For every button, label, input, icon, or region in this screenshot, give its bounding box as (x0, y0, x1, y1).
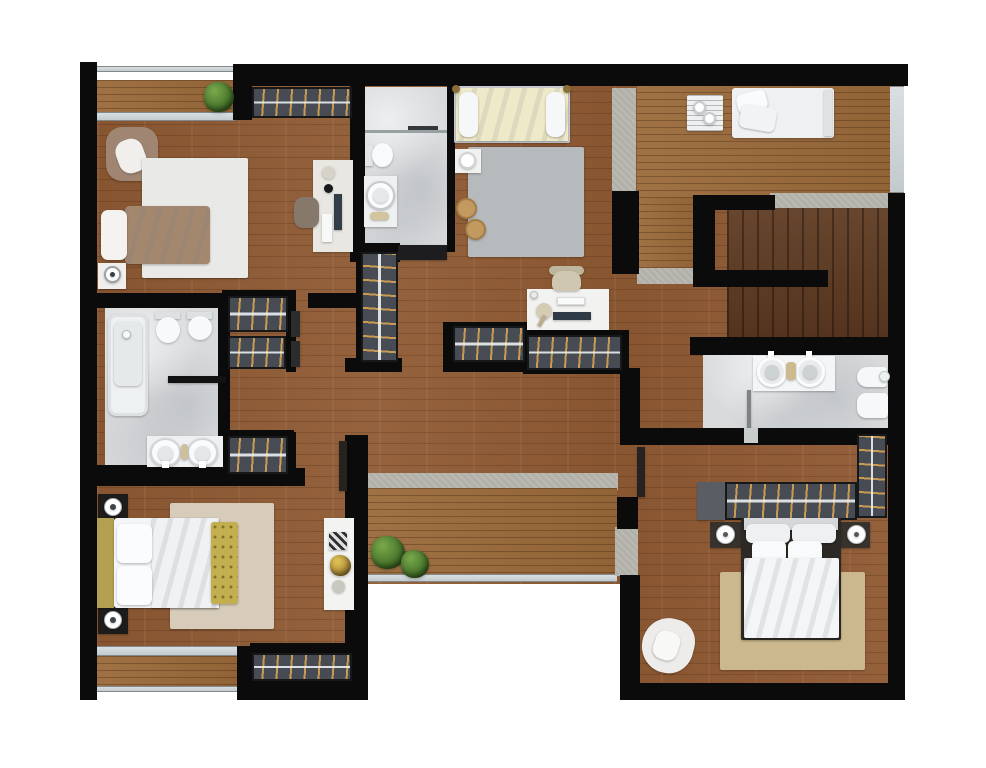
bathroom-right-soap (786, 362, 796, 380)
wardrobe-bedroom3-cabinet (697, 482, 725, 520)
bathroom-right-bidet-btn (879, 371, 890, 382)
bedroom1-bed-duvet (125, 206, 210, 264)
wardrobe-bl (252, 653, 352, 681)
bedroom2-desk-keyboard (557, 297, 585, 305)
wall-bedroom3-left-mid (617, 497, 638, 529)
bathroom-left-toilet-bowl (156, 317, 180, 343)
bathroom-left-sink-a-inner (158, 446, 173, 461)
wall-terrace-left (612, 191, 639, 274)
wall-stairs-top (715, 195, 775, 210)
balcony-bl-deck (97, 656, 237, 687)
balcony-plant-a (371, 536, 405, 569)
bedroom2-rug (468, 147, 584, 257)
bedroom4-lamp-bottom-dot (110, 617, 116, 623)
wardrobe-hall-a (228, 296, 288, 332)
floor-plan (0, 0, 986, 768)
bathroom-left-soap (181, 444, 188, 460)
bathroom-right-toilet (857, 393, 888, 418)
bathroom-left-faucet-b (199, 461, 206, 468)
wall-right (888, 193, 905, 700)
bathroom-ensuite1-floor (363, 87, 447, 252)
bedroom1-desk-dot (324, 184, 333, 193)
bedroom4-console-dish (332, 580, 345, 593)
wall-bottom-right (620, 683, 893, 700)
bedroom1-desk-lamp (322, 166, 335, 179)
bedroom2-pouf-a (456, 198, 477, 219)
bedroom4-door-leaf (339, 441, 347, 491)
bathroom-left-faucet-a (162, 461, 169, 468)
terrace-cup-b (703, 112, 716, 125)
wardrobe-bedroom3-right (857, 434, 887, 518)
bedroom3-lamp-right-dot (854, 532, 859, 537)
concrete-pillar (615, 527, 638, 576)
wall-bathroom-right-bottom (640, 428, 893, 445)
bedroom2-bed-knob-right (563, 85, 571, 93)
bathroom-left-tub-drain (122, 330, 131, 339)
wardrobe-hall-b (228, 336, 286, 369)
bedroom2-desk-mug (530, 291, 538, 299)
bedroom4-console-flowers (330, 555, 351, 576)
bathroom-right-sink-a-inner (765, 365, 779, 379)
terrace-window-sill (612, 88, 636, 193)
wardrobe-hall-c (228, 436, 288, 474)
wall-bedroom3-left-lower (620, 575, 640, 687)
bedroom1-door-leaf-a (291, 311, 300, 337)
shower-door-handle (408, 126, 438, 130)
wardrobe-bedroom3-top (725, 482, 857, 520)
bedroom1-chair (294, 197, 319, 228)
bedroom3-lamp-left-dot (723, 532, 728, 537)
bedroom4-pillow-a (117, 524, 152, 563)
bedroom2-bed-pillow-right (546, 92, 565, 137)
exterior-cutout-bottom (368, 584, 620, 700)
wall-left (80, 62, 97, 700)
bedroom4-bed-headboard (97, 518, 114, 608)
wall-bathroom-right-top (690, 337, 893, 355)
bedroom2-bed-knob-left (452, 85, 460, 93)
bedroom1-door-leaf-b (291, 341, 300, 367)
bathroom-left-sink-b-inner (195, 446, 210, 461)
bedroom2-pouf-b (465, 219, 486, 240)
terrace-lounger-back (824, 90, 832, 136)
wall-stairs-mid (695, 270, 828, 287)
bedroom4-pillow-b (117, 566, 152, 605)
bathroom1-door (398, 245, 447, 260)
wardrobe-bedroom2-b (527, 335, 622, 370)
bathroom1-toilet-bowl (372, 143, 393, 167)
stairs-landing-left (637, 268, 695, 284)
terrace-deck-column (637, 197, 695, 271)
bathroom-right-door-line (747, 390, 751, 428)
bathroom1-soap (370, 212, 389, 220)
wardrobe-center (361, 252, 398, 362)
wall-top (233, 64, 908, 86)
wardrobe-bedroom2-a (453, 326, 525, 362)
bedroom2-bed-pillow-left (459, 92, 478, 137)
plant-balcony-tl (204, 82, 234, 112)
bedroom1-lamp-dot (110, 272, 115, 277)
bedroom2-side-decor (459, 152, 476, 169)
shower-glass-divider (365, 130, 447, 133)
bedroom3-bed-duvet (744, 558, 839, 638)
bedroom4-bed-duvet (152, 518, 219, 608)
stairs-landing-top (770, 193, 888, 209)
bathroom1-sink-inner (373, 188, 388, 203)
bedroom4-lamp-top-dot (110, 504, 116, 510)
bedroom2-desk-monitor (553, 312, 591, 320)
balcony-bl-railing (97, 686, 237, 692)
wall-post-balcony-tl (233, 86, 252, 120)
wall-bedroom1-bottom-b (308, 293, 357, 308)
balcony-bl-glass-door (97, 646, 237, 656)
terrace-cup-a (693, 101, 706, 114)
bedroom1-desk-keyboard (322, 214, 332, 242)
bedroom1-desk-monitor (334, 194, 342, 230)
bedroom2-chair (552, 271, 581, 291)
balcony-tl-glass-door (97, 112, 235, 121)
wall-wardrobe-bl-bottom (250, 680, 352, 700)
wardrobe-bedroom1 (252, 87, 352, 118)
wall-bedroom3-left-corner (620, 428, 643, 445)
bathroom-right-sink-b-inner (803, 365, 817, 379)
bathroom-left-bidet-bowl (188, 316, 212, 340)
terrace-railing-right (890, 86, 904, 193)
bedroom1-bed-pillow (101, 210, 127, 260)
bedroom4-bench (211, 522, 238, 604)
bathroom-left-divider (168, 376, 226, 383)
bathroom-right-door-sill (744, 428, 758, 443)
balcony-plant-b (401, 550, 429, 578)
balcony-tl-railing (95, 66, 237, 72)
bedroom4-console-box (329, 532, 347, 550)
bedroom3-door-leaf (637, 447, 645, 497)
